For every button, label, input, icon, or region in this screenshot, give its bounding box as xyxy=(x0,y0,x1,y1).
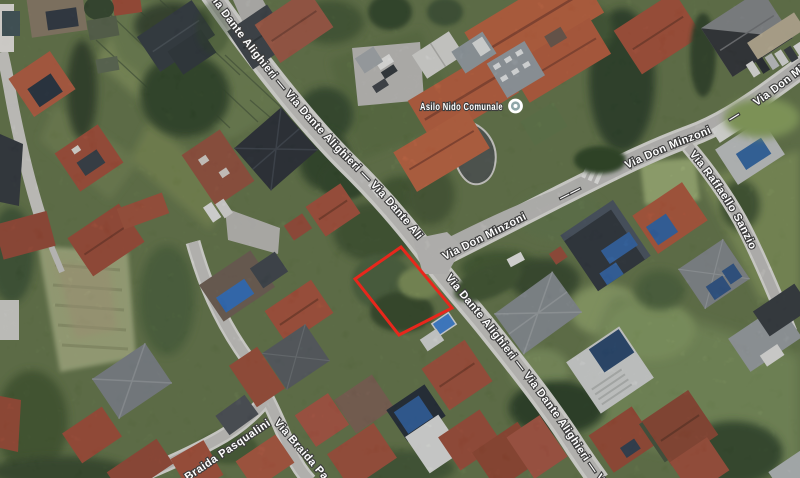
svg-text:Asilo Nido Comunale: Asilo Nido Comunale xyxy=(420,102,503,113)
